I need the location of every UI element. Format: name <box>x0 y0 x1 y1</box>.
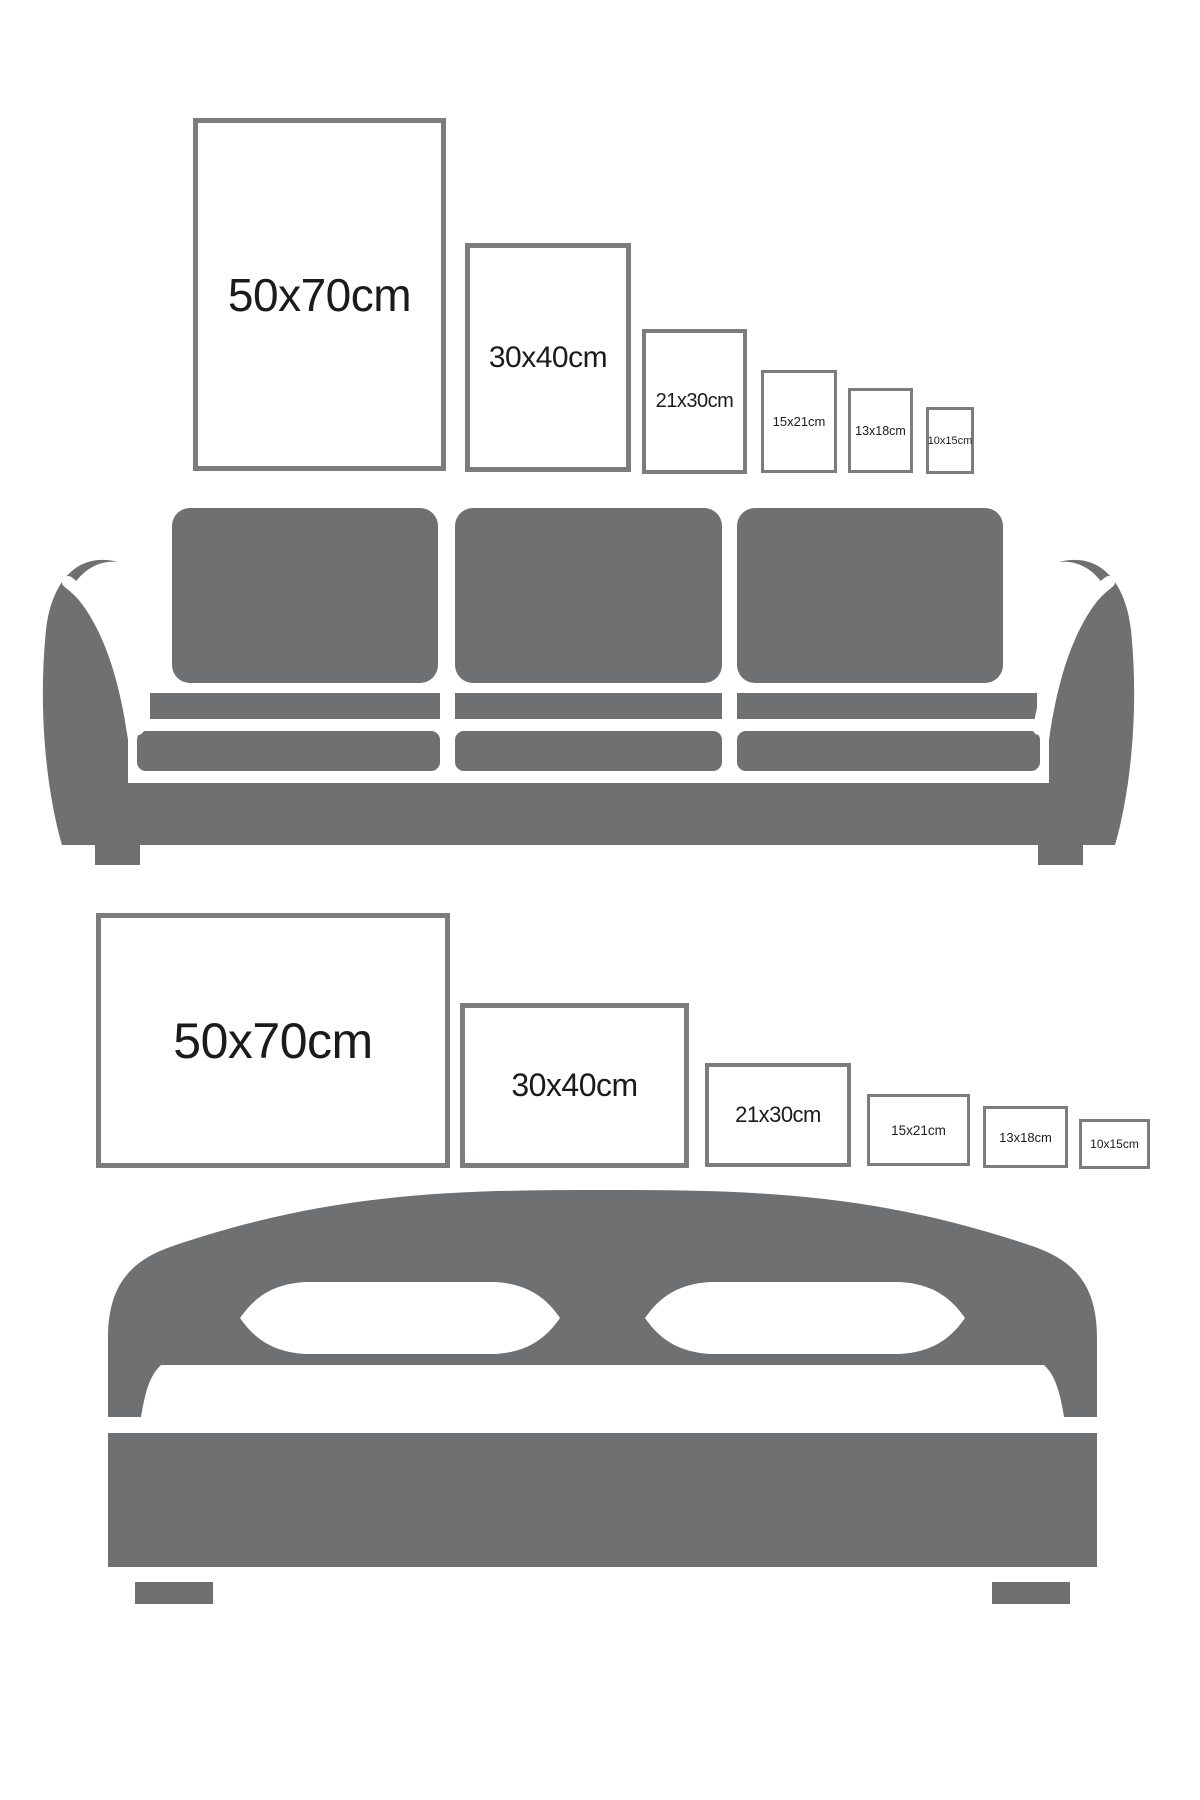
sofa-seat-cushion-left <box>137 731 440 771</box>
furniture-illustrations <box>0 0 1200 1800</box>
bed-pillow-left <box>240 1282 560 1354</box>
sofa-base <box>76 783 1102 845</box>
bed-base <box>108 1433 1097 1567</box>
bed-foot-right <box>992 1582 1070 1604</box>
sofa-deck-middle <box>455 693 722 719</box>
bed-pillow-right <box>645 1282 965 1354</box>
sofa-seat-cushion-right <box>737 731 1040 771</box>
sofa-deck-right <box>737 693 1037 719</box>
sofa-back-cushion-middle <box>455 508 722 683</box>
sofa-back-cushion-left <box>172 508 438 683</box>
sofa-foot-right <box>1038 845 1083 865</box>
sofa-icon <box>43 508 1134 865</box>
bed-foot-left <box>135 1582 213 1604</box>
bed-icon <box>108 1190 1097 1604</box>
sofa-seat-cushion-middle <box>455 731 722 771</box>
sofa-back-cushion-right <box>737 508 1003 683</box>
sofa-foot-left <box>95 845 140 865</box>
sofa-deck-left <box>150 693 440 719</box>
size-guide-infographic: 50x70cm 30x40cm 21x30cm 15x21cm 13x18cm … <box>0 0 1200 1800</box>
